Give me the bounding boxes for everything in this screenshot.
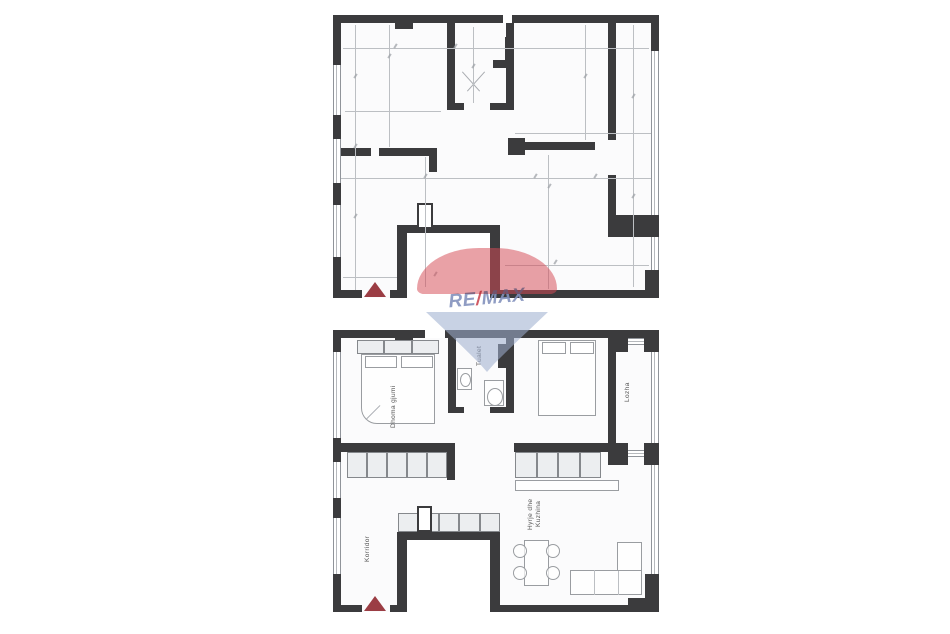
wall (333, 183, 341, 205)
wall (608, 443, 628, 465)
wall (490, 103, 514, 110)
pillow (570, 342, 594, 354)
wall (644, 338, 659, 352)
dimension-line (585, 25, 586, 140)
brand-re: RE (448, 289, 477, 312)
window (651, 237, 659, 270)
wall (333, 15, 659, 23)
chair (513, 566, 527, 580)
wall (333, 605, 362, 612)
shaft (493, 60, 513, 68)
window (651, 51, 659, 215)
wall (651, 15, 659, 51)
room-label-kitchen-line2: Kuzhina (535, 501, 542, 527)
sofa-cushion-divider (618, 570, 619, 595)
wall (333, 115, 341, 139)
room-label-corridor: Korridor (364, 536, 371, 562)
floorplan-image: { "canvas": {"width": 950, "height": 634… (0, 0, 950, 634)
sideboard (515, 480, 619, 491)
wall (645, 270, 659, 298)
wall (608, 338, 628, 352)
chair (546, 544, 560, 558)
window (333, 462, 341, 498)
sofa-cushion-divider (594, 570, 595, 595)
sink-basin (460, 373, 471, 387)
wall (429, 148, 437, 172)
window (628, 338, 644, 345)
wall (644, 443, 659, 465)
window (333, 205, 341, 257)
balloon-bottom-icon (426, 312, 548, 372)
window (333, 352, 341, 438)
wall (397, 225, 500, 233)
chair (513, 544, 527, 558)
wall (397, 225, 407, 298)
wall (608, 175, 616, 217)
sofa (570, 570, 642, 595)
sofa (617, 542, 642, 571)
dimension-tick (387, 53, 391, 58)
wall-gap (503, 15, 512, 23)
wall (508, 138, 525, 155)
wall (490, 532, 500, 612)
dimension-tick (353, 213, 357, 218)
wall (447, 443, 455, 480)
wall (447, 103, 464, 110)
window (333, 65, 341, 115)
wall (447, 23, 455, 110)
dimension-line (343, 277, 397, 278)
wall (490, 407, 514, 413)
chair (546, 566, 560, 580)
wardrobe (515, 452, 601, 478)
door-swing-line (462, 72, 480, 92)
wall (341, 443, 447, 452)
wall (333, 15, 341, 65)
pillow (365, 356, 397, 368)
dimension-tick (631, 193, 635, 198)
window (651, 465, 659, 574)
dimension-line (515, 133, 651, 134)
wall (608, 23, 616, 140)
dimension-tick (583, 73, 587, 78)
window (628, 450, 644, 457)
wall (397, 532, 407, 612)
dimension-line (389, 25, 390, 147)
room-label-bedroom: Dhoma gjumi (390, 385, 397, 428)
wall (514, 443, 616, 452)
remax-watermark: RE/MAX (417, 248, 557, 374)
dimension-line (341, 178, 651, 179)
wall (395, 23, 413, 29)
dimension-line (355, 25, 356, 290)
window (651, 352, 659, 443)
room-label-loggia: Lozha (624, 382, 631, 402)
dimension-tick (547, 183, 551, 188)
dimension-tick (631, 93, 635, 98)
wc-bowl (487, 388, 503, 406)
dining-table (524, 540, 549, 586)
window (333, 518, 341, 574)
room-label-kitchen-line1: Hyrje dhe (527, 499, 534, 530)
wall (333, 290, 362, 298)
dimension-tick (353, 73, 357, 78)
wall (628, 598, 659, 612)
wall (525, 142, 595, 150)
wall (608, 338, 616, 443)
dimension-line (633, 25, 634, 287)
window (333, 139, 341, 183)
entrance-door (417, 506, 432, 532)
wall (333, 330, 341, 352)
kitchen-counter (398, 513, 500, 532)
wall (341, 148, 371, 156)
wardrobe (347, 452, 447, 478)
dimension-line (345, 111, 441, 112)
brand-max: MAX (481, 285, 526, 310)
dimension-tick (471, 63, 475, 68)
wall (333, 438, 341, 462)
entrance-marker-icon (364, 282, 386, 297)
entrance-marker-icon (364, 596, 386, 611)
wall (333, 498, 341, 518)
wall (448, 407, 464, 413)
entrance-recess (407, 540, 490, 612)
wall (397, 532, 500, 540)
